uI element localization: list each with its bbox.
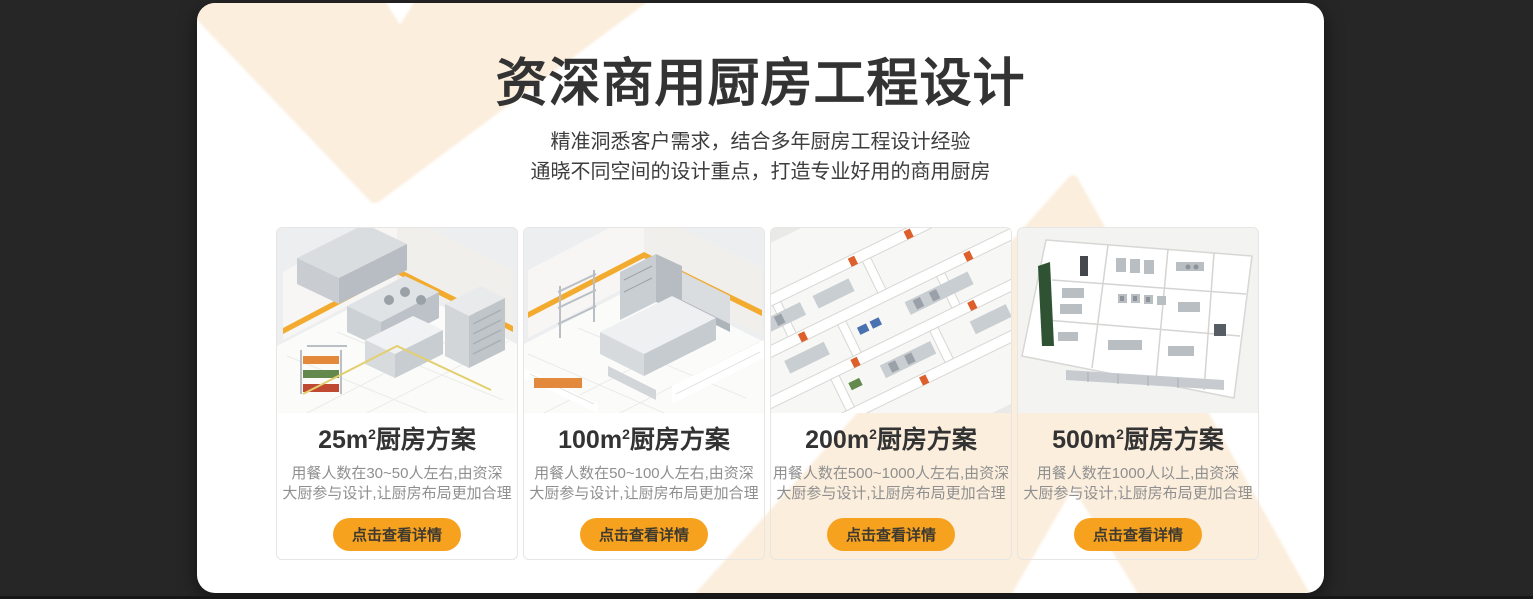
section-header: 资深商用厨房工程设计 精准洞悉客户需求，结合多年厨房工程设计经验 通晓不同空间的…: [197, 53, 1324, 187]
view-details-button[interactable]: 点击查看详情: [333, 518, 461, 551]
kitchen-render-image-200m2: [771, 228, 1011, 413]
card-description: 用餐人数在1000人以上,由资深 大厨参与设计,让厨房布局更加合理: [1018, 464, 1258, 504]
view-details-button[interactable]: 点击查看详情: [580, 518, 708, 551]
superscript: 2: [622, 426, 630, 442]
card-description: 用餐人数在50~100人左右,由资深 大厨参与设计,让厨房布局更加合理: [524, 464, 764, 504]
plan-cards-row: 25m2厨房方案 用餐人数在30~50人左右,由资深 大厨参与设计,让厨房布局更…: [276, 227, 1259, 560]
card-description: 用餐人数在500~1000人左右,由资深 大厨参与设计,让厨房布局更加合理: [771, 464, 1011, 504]
page-title: 资深商用厨房工程设计: [197, 53, 1324, 115]
kitchen-render-image-25m2: [277, 228, 517, 413]
kitchen-render-image-500m2: [1018, 228, 1258, 413]
view-details-button[interactable]: 点击查看详情: [1074, 518, 1202, 551]
subtitle-line-2: 通晓不同空间的设计重点，打造专业好用的商用厨房: [197, 157, 1324, 187]
superscript: 2: [1116, 426, 1124, 442]
card-title: 200m2厨房方案: [771, 425, 1011, 458]
card-title: 500m2厨房方案: [1018, 425, 1258, 458]
subtitle-line-1: 精准洞悉客户需求，结合多年厨房工程设计经验: [197, 127, 1324, 157]
kitchen-render-image-100m2: [524, 228, 764, 413]
view-details-button[interactable]: 点击查看详情: [827, 518, 955, 551]
plan-card-200m2: 200m2厨房方案 用餐人数在500~1000人左右,由资深 大厨参与设计,让厨…: [770, 227, 1012, 560]
superscript: 2: [869, 426, 877, 442]
superscript: 2: [368, 426, 376, 442]
card-title: 100m2厨房方案: [524, 425, 764, 458]
plan-card-100m2: 100m2厨房方案 用餐人数在50~100人左右,由资深 大厨参与设计,让厨房布…: [523, 227, 765, 560]
card-title: 25m2厨房方案: [277, 425, 517, 458]
content-panel: 资深商用厨房工程设计 精准洞悉客户需求，结合多年厨房工程设计经验 通晓不同空间的…: [197, 3, 1324, 593]
card-description: 用餐人数在30~50人左右,由资深 大厨参与设计,让厨房布局更加合理: [277, 464, 517, 504]
plan-card-500m2: 500m2厨房方案 用餐人数在1000人以上,由资深 大厨参与设计,让厨房布局更…: [1017, 227, 1259, 560]
plan-card-25m2: 25m2厨房方案 用餐人数在30~50人左右,由资深 大厨参与设计,让厨房布局更…: [276, 227, 518, 560]
page-background: 资深商用厨房工程设计 精准洞悉客户需求，结合多年厨房工程设计经验 通晓不同空间的…: [0, 0, 1533, 599]
